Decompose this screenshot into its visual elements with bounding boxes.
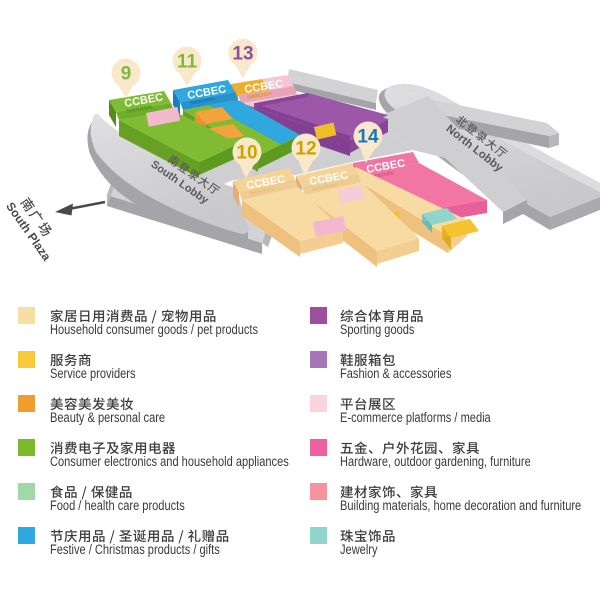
svg-text:9: 9 [121, 64, 132, 85]
svg-text:11: 11 [177, 52, 198, 73]
svg-text:10: 10 [236, 143, 257, 164]
svg-text:13: 13 [232, 44, 253, 65]
svg-text:14: 14 [357, 127, 379, 148]
svg-text:12: 12 [295, 139, 316, 160]
